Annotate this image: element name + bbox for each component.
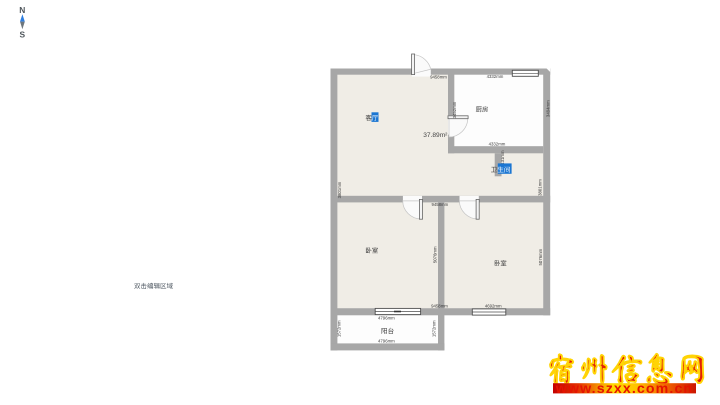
svg-text:4796mm: 4796mm [378, 339, 395, 344]
svg-text:www.szxx.com.cn: www.szxx.com.cn [555, 381, 693, 397]
svg-text:4692mm: 4692mm [485, 303, 502, 308]
svg-text:3801mm: 3801mm [337, 181, 342, 198]
svg-text:3452mm: 3452mm [452, 101, 457, 118]
svg-text:3801mm: 3801mm [538, 179, 543, 196]
svg-text:1572mm: 1572mm [337, 320, 342, 337]
svg-text:4332mm: 4332mm [489, 142, 506, 147]
svg-text:4796mm: 4796mm [378, 315, 395, 320]
svg-text:9458mm: 9458mm [431, 303, 448, 308]
svg-text:4332mm: 4332mm [487, 74, 504, 79]
svg-text:5076mm: 5076mm [538, 248, 543, 265]
svg-text:S: S [20, 30, 26, 40]
svg-text:9458mm: 9458mm [430, 75, 447, 80]
svg-text:3494mm: 3494mm [545, 100, 550, 117]
svg-text:37.89m²: 37.89m² [423, 132, 448, 139]
svg-text:5076mm: 5076mm [433, 246, 438, 263]
svg-text:N: N [19, 5, 25, 15]
svg-text:1572mm: 1572mm [432, 320, 437, 337]
svg-text:9458mm: 9458mm [431, 202, 448, 207]
